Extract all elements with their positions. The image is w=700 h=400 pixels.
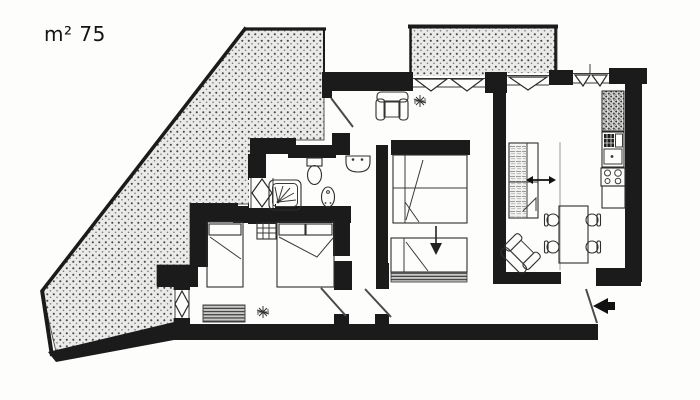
chair-icon [545,241,560,253]
kitchen-window [573,64,609,86]
terrace-door-swing [331,98,353,127]
down-arrow-icon [430,226,442,255]
doors [321,98,615,323]
washbasin-icon [346,156,370,172]
double-bed-icon [277,222,334,287]
balcony-window [507,73,549,90]
chair-icon [545,214,560,226]
plant-icon [257,306,269,318]
armchair-icon [376,92,408,120]
kitchen-sink-icon [602,132,624,167]
bedroom-door-swing [321,288,346,316]
bedroom-2-furniture [391,155,467,282]
kitchen-fixtures [509,91,625,270]
living-area-furniture [376,92,426,120]
bedroom-window: <189 x1="189" y1="290" x2="189" y2="318"… [173,290,191,318]
balcony [408,25,558,77]
bathroom-window [249,178,275,208]
dining-table-icon [559,206,588,263]
hall-door-swing [365,289,391,317]
plant-icon [414,95,426,107]
counter-icon [602,186,625,208]
rug-icon [203,305,245,322]
slide-arrow-icon [526,176,556,184]
single-bed-icon [207,222,243,287]
refrigerator-icon [602,91,624,131]
hatched-strip [391,272,467,282]
floor-plan: m² 75 [0,0,700,400]
nightstand-icon [257,223,276,239]
double-bed-2-icon [393,155,467,223]
bathroom-fixtures [269,156,370,210]
bidet-icon [322,187,335,207]
toilet-icon [307,158,322,185]
cooktop-icon [601,168,625,186]
bedroom-1-furniture [203,222,334,322]
chest-icon [391,238,467,282]
balcony-door-window [413,76,485,91]
entry-arrow-icon [593,298,615,314]
floor-plan-drawing: <189 x1="189" y1="290" x2="189" y2="318"… [0,0,700,400]
